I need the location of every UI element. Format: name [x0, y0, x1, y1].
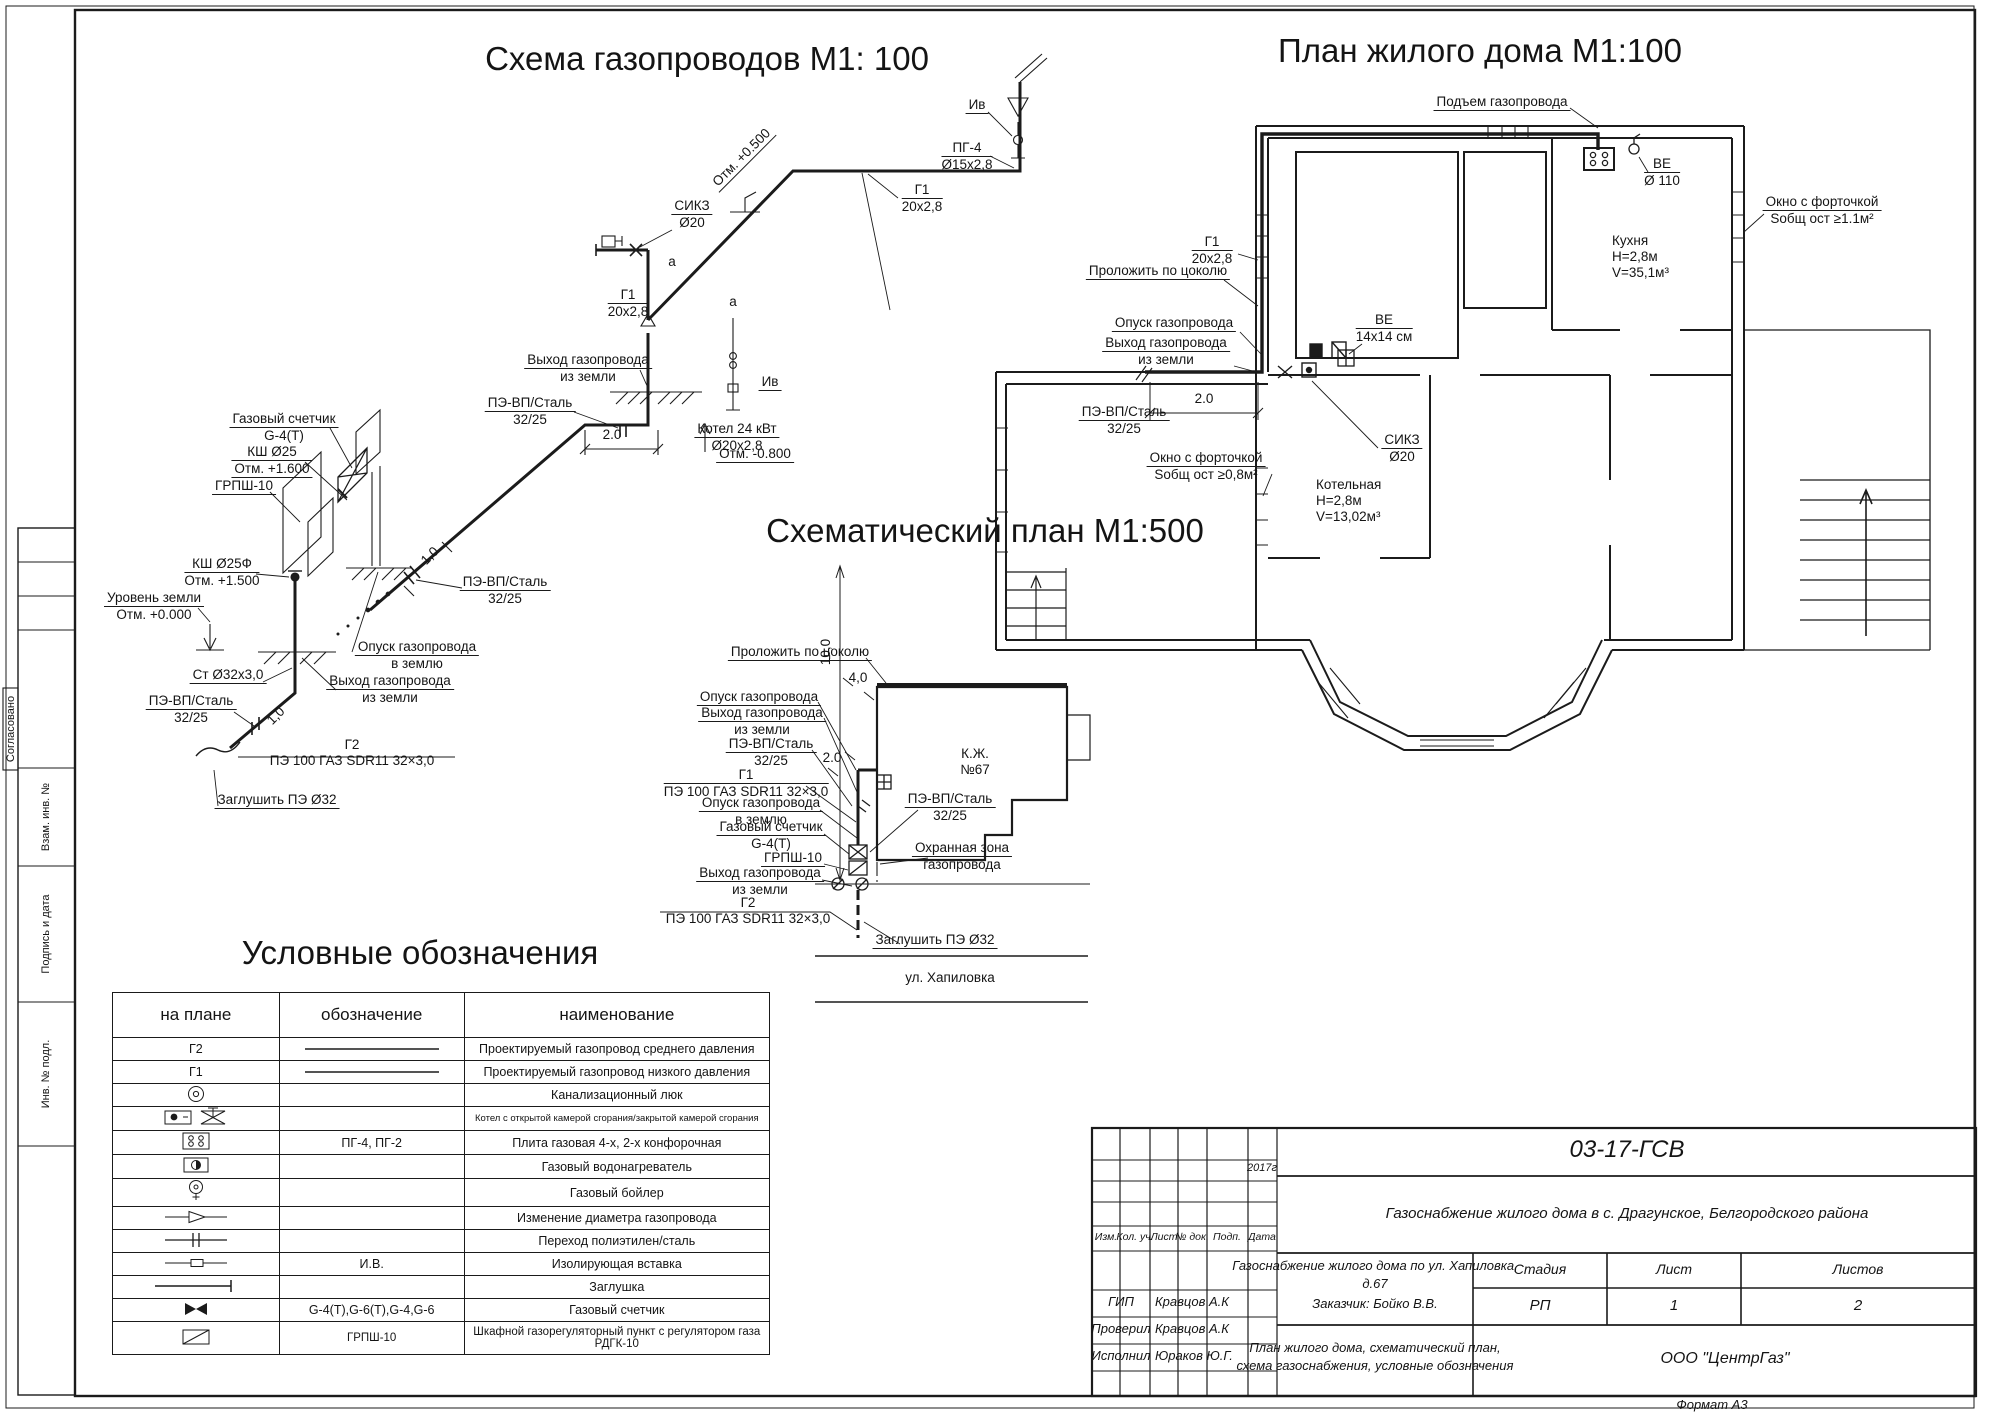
legend-row: Г2 Проектируемый газопровод среднего дав…	[113, 1038, 770, 1061]
water-heater-icon	[182, 1155, 210, 1175]
name-executed: Юраков Ю.Г.	[1155, 1348, 1233, 1363]
exit-ground-label: Выход газопроводаиз земли	[524, 352, 652, 385]
protection-zone-label: Охранная зонагазопровода	[912, 840, 1012, 873]
sheet-value: 1	[1670, 1297, 1678, 1314]
object-line2: д.67	[1362, 1276, 1387, 1291]
basement-route-label: Проложить по цоколю	[1086, 263, 1230, 280]
dim-2-0-plan: 2.0	[1195, 391, 1214, 407]
sheets-value: 2	[1854, 1297, 1862, 1314]
dim-4-0: 4,0	[849, 670, 868, 686]
valve-25f-label: КШ Ø25ФОтм. +1.500	[184, 556, 259, 589]
plan-title: План жилого дома М1:100	[1278, 32, 1682, 70]
stage-value: РП	[1530, 1297, 1551, 1314]
pe-steel-label2: ПЭ-ВП/Сталь32/25	[146, 693, 237, 726]
gas-stove-icon	[181, 1131, 211, 1151]
sewer-manhole-icon	[186, 1085, 206, 1103]
schematic-title: Схематический план М1:500	[766, 512, 1204, 550]
exit-ground-label2-sch: Выход газопроводаиз земли	[696, 865, 824, 898]
plug-label: Заглушить ПЭ Ø32	[215, 792, 340, 809]
kitchen-room-label: КухняН=2,8мV=35,1м³	[1612, 233, 1669, 281]
vent-14-label: ВЕ14х14 см	[1356, 312, 1413, 345]
sidebar-inv: Инв. № подл.	[40, 1040, 52, 1109]
gas-boiler-icon	[185, 1179, 207, 1203]
legend-row: Заглушка	[113, 1276, 770, 1299]
dim-10-0: 10,0	[818, 639, 834, 665]
content-line1: План жилого дома, схематический план,	[1249, 1340, 1500, 1355]
sidebar-agreed: Согласовано	[5, 696, 17, 762]
iv-label: Ив	[966, 97, 989, 114]
role-gip: ГИП	[1108, 1294, 1134, 1309]
legend-row: ПГ-4, ПГ-2Плита газовая 4-х, 2-х конфоро…	[113, 1131, 770, 1155]
grpsh-label: ГРПШ-10	[212, 478, 276, 495]
legend-row: Канализационный люк	[113, 1084, 770, 1107]
col-podp: Подп.	[1213, 1231, 1241, 1243]
basement-route-label-sch: Проложить по цоколю	[728, 644, 872, 661]
window-label-kitchen: Окно с форточкойSобщ ост ≥1.1м²	[1763, 194, 1882, 227]
drawing-sheet: Схема газопроводов М1: 100 План жилого д…	[0, 0, 2000, 1414]
legend-row: Г1 Проектируемый газопровод низкого давл…	[113, 1061, 770, 1084]
gas-meter-label: Газовый счетчикG-4(Т)	[230, 411, 339, 444]
name-gip: Кравцов А.К	[1155, 1294, 1229, 1309]
organization: ООО "ЦентрГаз"	[1660, 1350, 1789, 1368]
gas-meter-label-sch: Газовый счетчикG-4(Т)	[717, 819, 826, 852]
exit-ground-label2: Выход газопроводаиз земли	[326, 673, 454, 706]
insulating-insert-icon	[161, 1255, 231, 1271]
vent-110-label: ВЕØ 110	[1644, 156, 1680, 189]
year-value: 2017г	[1247, 1162, 1277, 1174]
street-label: ул. Хапиловка	[905, 970, 995, 986]
pe-steel-label-sch: ПЭ-ВП/Сталь32/25	[726, 736, 817, 769]
dim-2-0-sch: 2.0	[823, 750, 842, 766]
pipe-rise-label: Подъем газопровода	[1434, 94, 1571, 111]
legend-title: Условные обозначения	[242, 934, 599, 972]
role-checked: Проверил	[1091, 1321, 1150, 1336]
sidebar-vzam: Взам. инв. №	[40, 783, 52, 851]
format-label: Формат А3	[1676, 1397, 1747, 1412]
col-izm: Изм.	[1095, 1231, 1117, 1243]
object-line1: Газоснабжение жилого дома по ул. Хапилов…	[1232, 1258, 1518, 1273]
section-mark-a2: а	[729, 294, 737, 310]
plug-icon	[151, 1278, 241, 1294]
legend-col-designation: обозначение	[279, 993, 464, 1038]
legend-row: Котел с открытой камерой сгорания/закрыт…	[113, 1107, 770, 1131]
stage-header: Стадия	[1514, 1261, 1566, 1277]
ground-level-label: Уровень землиОтм. +0.000	[104, 590, 204, 623]
col-kol: Кол. уч.	[1116, 1231, 1153, 1243]
descent-label-plan: Опуск газопровода	[1112, 315, 1236, 332]
exit-ground-label-sch: Выход газопроводаиз земли	[698, 705, 826, 738]
sikz-label-plan: СИКЗØ20	[1381, 432, 1422, 465]
descent-label: Опуск газопроводав землю	[355, 639, 479, 672]
gas-meter-icon	[181, 1301, 211, 1317]
doc-code: 03-17-ГСВ	[1570, 1136, 1685, 1164]
sheets-header: Листов	[1833, 1261, 1884, 1277]
legend-header: на плане обозначение наименование	[113, 993, 770, 1038]
legend-row: G-4(Т),G-6(Т),G-4,G-6Газовый счетчик	[113, 1299, 770, 1322]
pe-steel-label2-sch: ПЭ-ВП/Сталь32/25	[905, 791, 996, 824]
g2-pe100-label-sch: Г2ПЭ 100 ГАЗ SDR11 32×3,0	[666, 895, 831, 927]
legend-table: на плане обозначение наименование Г2 Про…	[112, 992, 770, 1355]
pipe-label-g1: Г120х2,8	[902, 182, 943, 215]
window-label-boiler: Окно с форточкойSобщ ост ≥0,8м²	[1147, 450, 1266, 483]
project-name: Газоснабжение жилого дома в с. Драгунско…	[1386, 1205, 1869, 1222]
steel-pipe-label: Ст Ø32х3,0	[190, 667, 267, 684]
g2-pipe-label: Г2ПЭ 100 ГАЗ SDR11 32×3,0	[270, 737, 435, 769]
low-pressure-line-icon	[297, 1068, 447, 1076]
legend-row: И.В.Изолирующая вставка	[113, 1253, 770, 1276]
grpsh-cabinet-icon	[181, 1327, 211, 1347]
legend-row: Газовый водонагреватель	[113, 1155, 770, 1179]
pe-steel-label3: ПЭ-ВП/Сталь32/25	[460, 574, 551, 607]
legend-row: ГРПШ-10Шкафной газорегуляторный пункт с …	[113, 1322, 770, 1355]
legend-row: Переход полиэтилен/сталь	[113, 1230, 770, 1253]
pe-steel-transition-icon	[161, 1231, 231, 1249]
plug-label-sch: Заглушить ПЭ Ø32	[873, 932, 998, 949]
pe-steel-label: ПЭ-ВП/Сталь32/25	[485, 395, 576, 428]
descent-label-sch: Опуск газопровода	[697, 689, 821, 706]
legend-row: Изменение диаметра газопровода	[113, 1207, 770, 1230]
house-number-label: К.Ж.№67	[960, 746, 990, 778]
sheet-header: Лист	[1656, 1261, 1692, 1277]
pe-steel-label-plan: ПЭ-ВП/Сталь32/25	[1079, 404, 1170, 437]
valve-25-label: КШ Ø25Отм. +1.600	[231, 444, 312, 478]
riser-label-g1: Г120х2,8	[608, 287, 649, 320]
sidebar-podpis: Подпись и дата	[40, 894, 52, 973]
name-checked: Кравцов А.К	[1155, 1321, 1229, 1336]
iv-label2: Ив	[759, 374, 782, 391]
role-executed: Исполнил	[1092, 1348, 1151, 1363]
stove-label: ПГ-4Ø15х2,8	[941, 140, 992, 173]
dim-2-0: 2.0	[603, 427, 622, 443]
legend-row: Газовый бойлер	[113, 1179, 770, 1207]
col-data: Дата	[1248, 1231, 1276, 1243]
boiler-chamber-icons	[163, 1107, 229, 1127]
diameter-change-icon	[161, 1208, 231, 1226]
col-ndoc: № док.	[1175, 1231, 1209, 1243]
legend-col-plan: на плане	[113, 993, 280, 1038]
content-line2: схема газоснабжения, условные обозначени…	[1237, 1358, 1514, 1373]
col-list: Лист	[1150, 1231, 1177, 1243]
medium-pressure-line-icon	[297, 1045, 447, 1053]
exit-ground-label-plan: Выход газопроводаиз земли	[1102, 335, 1230, 368]
legend-col-name: наименование	[464, 993, 769, 1038]
sikz-label: СИКЗØ20	[671, 198, 712, 231]
section-mark-a: а	[668, 254, 676, 270]
boiler-label: Котел 24 кВтØ20х2,8	[694, 421, 779, 454]
customer: Заказчик: Бойко В.В.	[1312, 1296, 1437, 1311]
boiler-room-label: КотельнаяН=2,8мV=13,02м³	[1316, 477, 1381, 525]
scheme-title: Схема газопроводов М1: 100	[485, 40, 929, 78]
